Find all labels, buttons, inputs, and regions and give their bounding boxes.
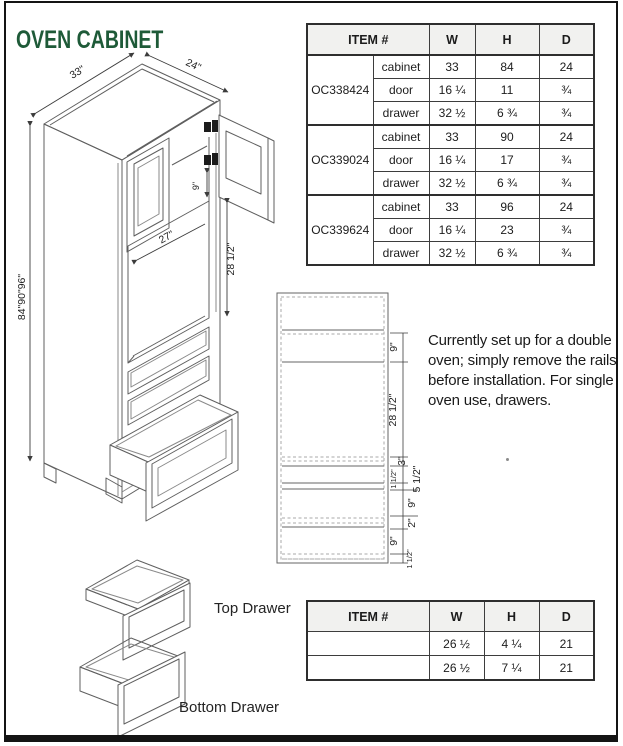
- d-cell: ¾: [539, 149, 594, 172]
- drawer-size-table: ITEM # W H D 26 ½ 4 ¼ 21 26 ½ 7 ¼ 21: [306, 600, 595, 681]
- d-cell: ¾: [539, 102, 594, 126]
- h-cell: 23: [475, 219, 539, 242]
- cabinet-isometric-drawing: [44, 64, 274, 521]
- d-cell: ¾: [539, 242, 594, 266]
- elev-dim-6: 9": [406, 498, 418, 508]
- bottom-drawer-label: Bottom Drawer: [179, 699, 279, 716]
- h-cell: 90: [475, 125, 539, 149]
- item-cell: [307, 656, 429, 681]
- elev-dim-2: 28 1/2": [387, 393, 399, 426]
- dim-opening-width: 27": [157, 228, 177, 246]
- w-cell: 33: [429, 195, 475, 219]
- spec-header-d: D: [539, 24, 594, 55]
- part-cell: door: [373, 149, 429, 172]
- d-cell: ¾: [539, 172, 594, 196]
- d-cell: 24: [539, 125, 594, 149]
- page: OVEN CABINET: [0, 0, 623, 746]
- elevation-dimension-labels: 9" 28 1/2" 3" 1 1/2" 5 1/2" 9" 2" 9" 1 1…: [387, 342, 423, 569]
- spec-table: ITEM # W H D OC338424 cabinet 33 84 24 d…: [306, 23, 595, 266]
- h-cell: 96: [475, 195, 539, 219]
- table-row: OC339624 cabinet 33 96 24: [307, 195, 594, 219]
- part-cell: cabinet: [373, 125, 429, 149]
- table-row: OC338424 cabinet 33 84 24: [307, 55, 594, 79]
- drawer-table-header-row: ITEM # W H D: [307, 601, 594, 632]
- table-row: 26 ½ 4 ¼ 21: [307, 632, 594, 656]
- part-cell: cabinet: [373, 55, 429, 79]
- drawer-header-item: ITEM #: [307, 601, 429, 632]
- spec-header-item: ITEM #: [307, 24, 429, 55]
- drawer-header-h: H: [484, 601, 539, 632]
- w-cell: 32 ½: [429, 242, 475, 266]
- dim-top-rail: 9": [191, 182, 201, 190]
- d-cell: 21: [539, 656, 594, 681]
- h-cell: 6 ¾: [475, 242, 539, 266]
- part-cell: cabinet: [373, 195, 429, 219]
- top-drawer-drawing: [86, 560, 190, 660]
- w-cell: 33: [429, 55, 475, 79]
- part-cell: door: [373, 219, 429, 242]
- top-drawer-label: Top Drawer: [214, 600, 291, 617]
- h-cell: 6 ¾: [475, 172, 539, 196]
- part-cell: door: [373, 79, 429, 102]
- w-cell: 16 ¼: [429, 79, 475, 102]
- drawer-header-d: D: [539, 601, 594, 632]
- elev-dim-8: 9": [388, 536, 400, 546]
- cabinet-left-side: [44, 124, 122, 499]
- table-row: 26 ½ 7 ¼ 21: [307, 656, 594, 681]
- spec-table-header-row: ITEM # W H D: [307, 24, 594, 55]
- item-code: OC339624: [307, 195, 373, 265]
- d-cell: ¾: [539, 79, 594, 102]
- elev-dim-3: 3": [396, 456, 408, 466]
- part-cell: drawer: [373, 102, 429, 126]
- table-row: OC339024 cabinet 33 90 24: [307, 125, 594, 149]
- h-cell: 11: [475, 79, 539, 102]
- h-cell: 84: [475, 55, 539, 79]
- w-cell: 16 ¼: [429, 149, 475, 172]
- elev-dim-7: 2": [406, 518, 418, 528]
- d-cell: 21: [539, 632, 594, 656]
- elev-dim-1: 9": [388, 342, 400, 352]
- h-cell: 6 ¾: [475, 102, 539, 126]
- spec-header-h: H: [475, 24, 539, 55]
- w-cell: 26 ½: [429, 632, 484, 656]
- drawer-header-w: W: [429, 601, 484, 632]
- dim-cabinet-depth: 24": [184, 57, 203, 75]
- dim-cabinet-heights: 84"90"96": [16, 274, 28, 320]
- dim-cabinet-width: 33": [68, 63, 88, 81]
- h-cell: 17: [475, 149, 539, 172]
- w-cell: 16 ¼: [429, 219, 475, 242]
- d-cell: 24: [539, 55, 594, 79]
- spec-header-w: W: [429, 24, 475, 55]
- pulled-out-drawer: [110, 395, 238, 521]
- item-code: OC339024: [307, 125, 373, 195]
- h-cell: 7 ¼: [484, 656, 539, 681]
- front-elevation-drawing: [277, 293, 388, 563]
- w-cell: 26 ½: [429, 656, 484, 681]
- h-cell: 4 ¼: [484, 632, 539, 656]
- installation-note: Currently set up for a double oven; simp…: [428, 331, 623, 411]
- w-cell: 32 ½: [429, 102, 475, 126]
- dim-opening-height: 28 1/2": [225, 242, 237, 275]
- part-cell: drawer: [373, 172, 429, 196]
- stray-mark: [506, 458, 509, 461]
- d-cell: 24: [539, 195, 594, 219]
- elev-dim-4: 1 1/2": [389, 469, 398, 489]
- d-cell: ¾: [539, 219, 594, 242]
- item-code: OC338424: [307, 55, 373, 125]
- part-cell: drawer: [373, 242, 429, 266]
- item-cell: [307, 632, 429, 656]
- elev-dim-5: 5 1/2": [411, 465, 423, 492]
- w-cell: 33: [429, 125, 475, 149]
- w-cell: 32 ½: [429, 172, 475, 196]
- elev-dim-9: 1 1/2": [405, 549, 414, 569]
